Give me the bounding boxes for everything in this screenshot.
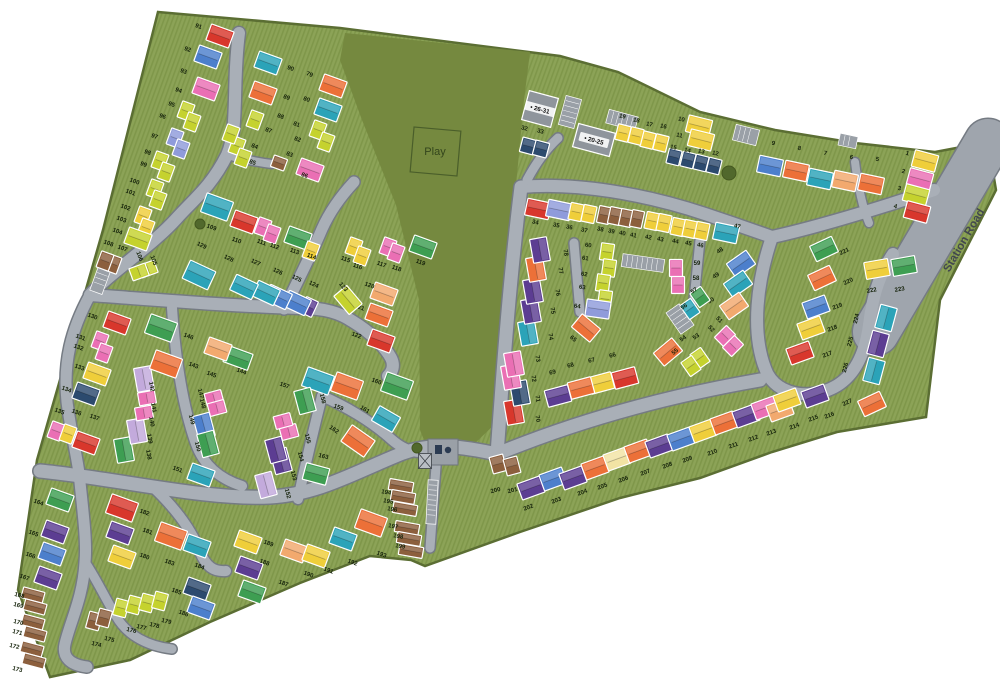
plot-number-label: 172 [9,643,21,652]
tree-icon [195,219,205,229]
plot-number-label: 173 [12,666,24,675]
house-plot-58[interactable] [672,277,685,294]
parking-court [426,480,438,524]
house-plot-78[interactable] [530,237,551,264]
house-plot-139[interactable] [127,418,148,445]
tree-icon [722,166,736,180]
plot-number-label: 170 [13,619,25,628]
house-plot-60[interactable] [599,243,614,262]
site-plan-canvas: Play• 26-31• 20-251234567891011121314151… [0,0,1000,690]
house-plot-46[interactable] [694,221,710,240]
plot-number-label: 171 [12,629,24,638]
house-plot-223[interactable] [891,256,918,277]
house-plot-64[interactable] [585,299,611,319]
house-plot-37[interactable] [581,204,597,223]
house-plot-222[interactable] [864,259,891,280]
development-site-plan: Play• 26-31• 20-251234567891011121314151… [0,0,1000,690]
house-plot-43[interactable] [656,213,672,232]
tree-icon [412,443,422,453]
plot-number-label: 58 [693,276,700,282]
house-plot-62[interactable] [595,274,610,293]
play-area-label: Play [424,146,446,158]
house-plot-73[interactable] [504,351,525,378]
house-plot-33[interactable] [532,140,549,158]
road [574,243,580,312]
house-plot-59[interactable] [670,260,683,277]
plot-number-label: 59 [694,261,701,267]
